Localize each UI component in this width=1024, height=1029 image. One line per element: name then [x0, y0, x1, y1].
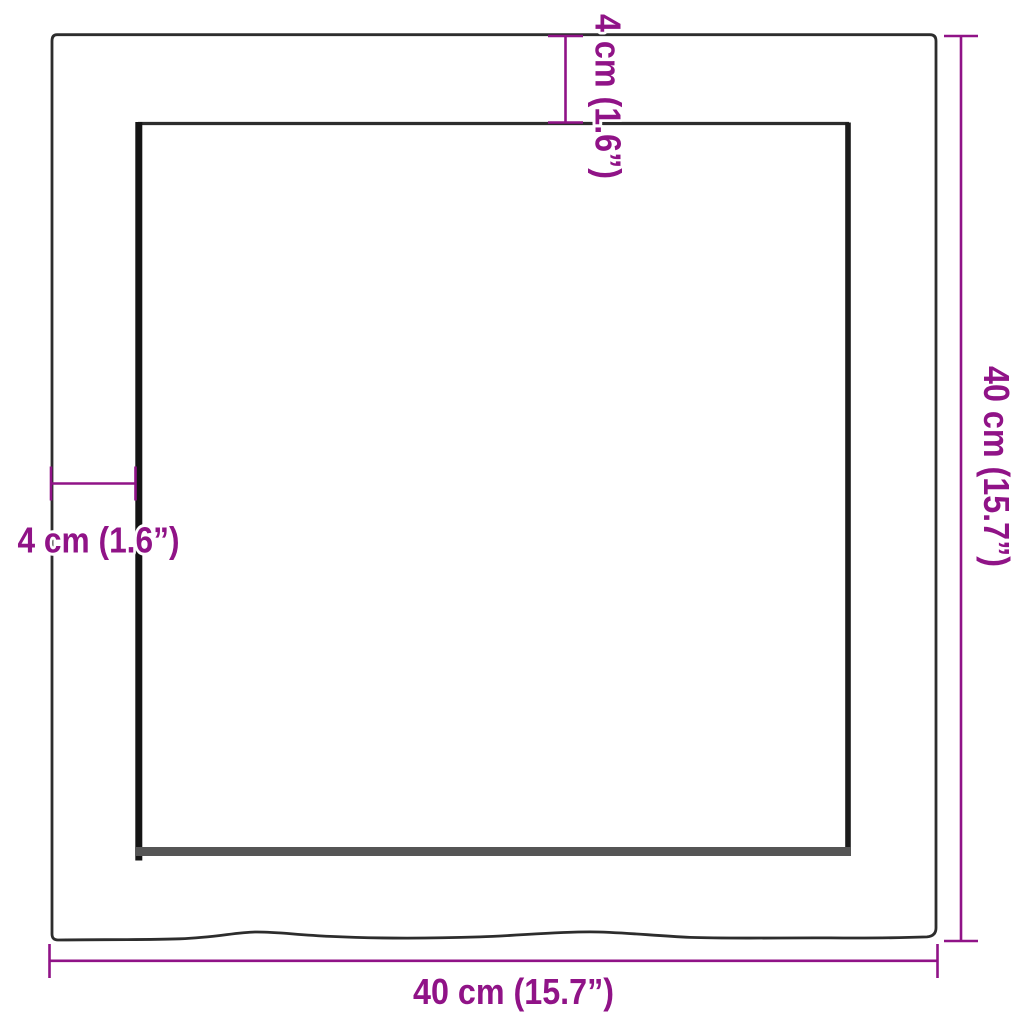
- svg-text:4 cm (1.6”): 4 cm (1.6”): [588, 14, 629, 179]
- svg-text:4 cm (1.6”): 4 cm (1.6”): [18, 520, 180, 561]
- svg-text:40 cm (15.7”): 40 cm (15.7”): [413, 971, 614, 1012]
- svg-text:40 cm (15.7”): 40 cm (15.7”): [976, 366, 1017, 567]
